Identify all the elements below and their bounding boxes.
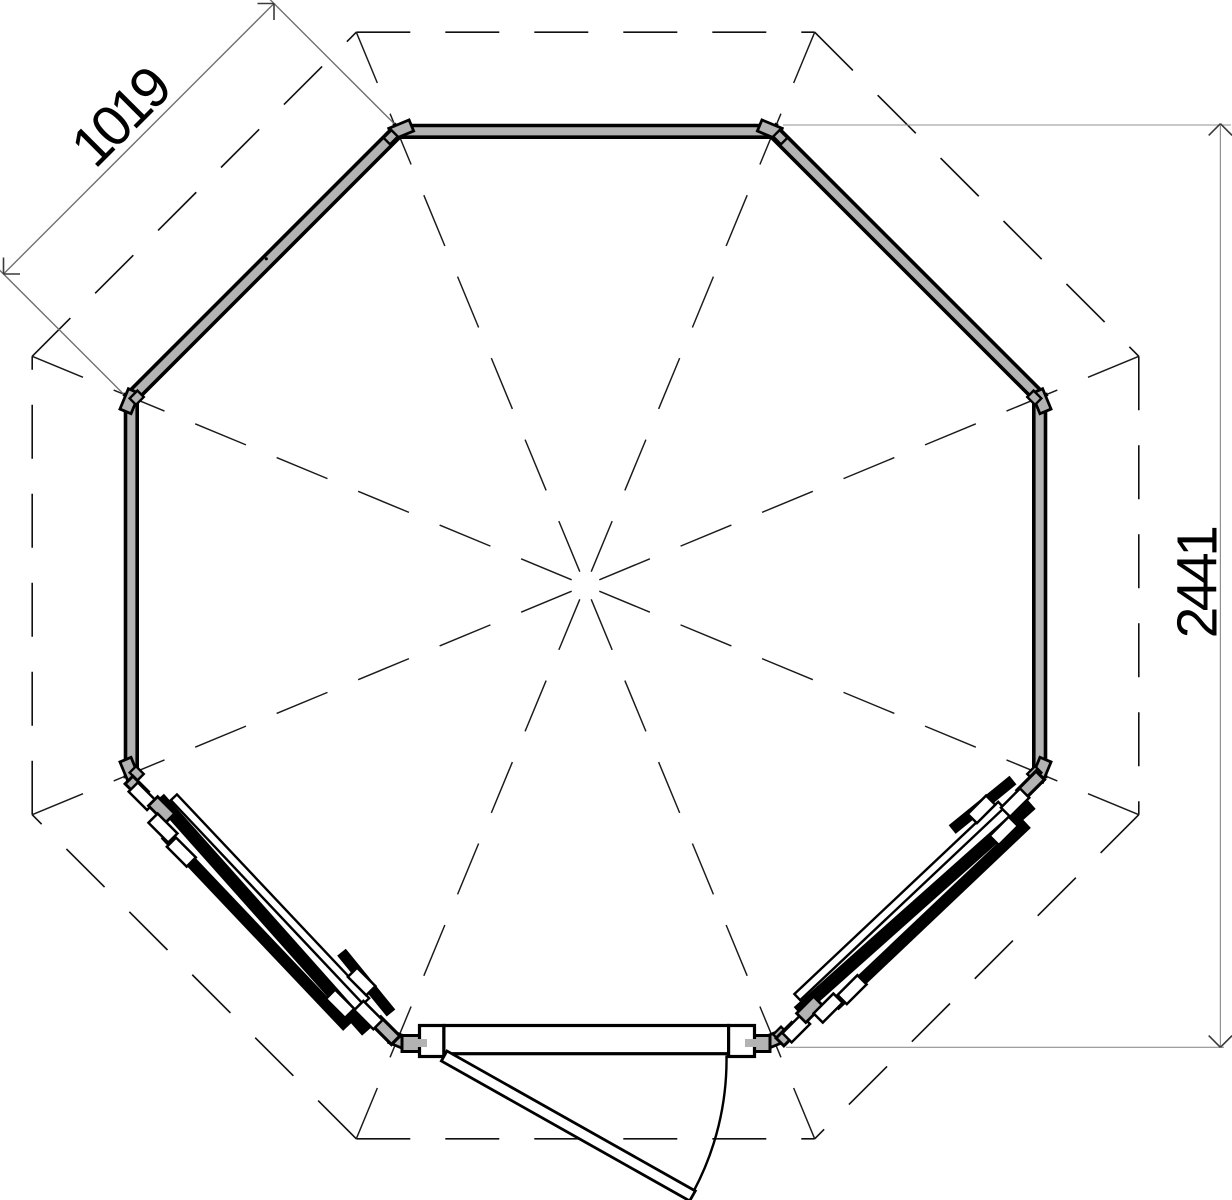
svg-text:2441: 2441 xyxy=(1166,528,1230,639)
